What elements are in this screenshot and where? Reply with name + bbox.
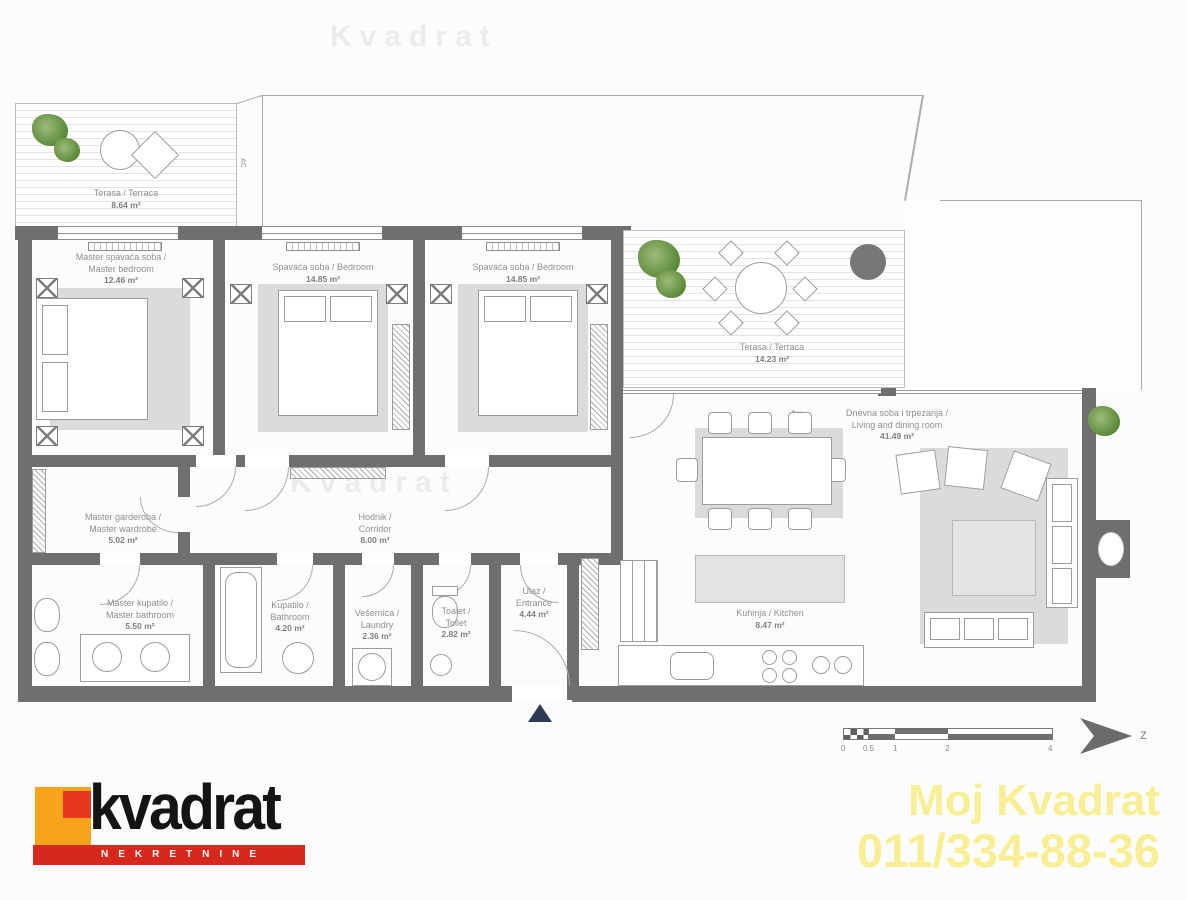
room-label-corridor: Hodnik / Corridor 8.00 m² (330, 512, 420, 546)
dining-chair (788, 508, 812, 530)
kvadrat-logo: kvadrat NEKRETNINE (33, 783, 305, 875)
room-area: 14.85 m² (448, 274, 598, 285)
entrance-door-arc (514, 630, 570, 686)
sink (92, 642, 122, 672)
armchair (895, 449, 940, 494)
wall (611, 226, 623, 565)
room-name-en: Bathroom (250, 612, 330, 624)
pillow (42, 305, 68, 355)
ac-label: AC (239, 158, 246, 168)
sofa-cushion (930, 618, 960, 640)
room-name: Terasa / Terraca (66, 188, 186, 200)
window (462, 226, 582, 240)
dining-chair (788, 412, 812, 434)
scale-tick: 4 (1048, 744, 1052, 753)
scale-tick: 1 (893, 744, 897, 753)
wall (411, 553, 423, 700)
door-opening (196, 455, 236, 467)
door-opening (362, 553, 394, 565)
parapet-line (262, 95, 263, 228)
wardrobe-closet (590, 324, 608, 430)
door-opening (512, 686, 572, 702)
washing-machine-drum (358, 653, 386, 681)
room-label-bedroom-b: Spavaća soba / Bedroom 14.85 m² (448, 262, 598, 285)
door-arc (445, 467, 489, 511)
dining-chair (708, 508, 732, 530)
room-label-kitchen: Kuhinja / Kitchen 8.47 m² (700, 608, 840, 631)
radiator (88, 242, 162, 251)
window (262, 226, 382, 240)
pillow (42, 362, 68, 412)
room-name: Terasa / Terraca (712, 342, 832, 354)
door-opening (277, 553, 313, 565)
hob-burner (812, 656, 830, 674)
dining-table (702, 437, 832, 505)
roof-area (905, 201, 1141, 388)
room-label-toilet: Toalet / Toilet 2.82 m² (425, 606, 487, 640)
dining-chair (748, 508, 772, 530)
plant-icon (656, 270, 686, 298)
pillow (484, 296, 526, 322)
room-area: 8.64 m² (66, 200, 186, 211)
hob-burner (834, 656, 852, 674)
agency-name: Moj Kvadrat (857, 776, 1160, 825)
fridge (620, 560, 658, 642)
sofa-cushion (1052, 526, 1072, 564)
pillow (530, 296, 572, 322)
kitchen-sink (670, 652, 714, 680)
room-label-entrance: Ulaz / Entrance 4.44 m² (504, 586, 564, 620)
room-area: 14.23 m² (712, 354, 832, 365)
sink (430, 654, 452, 676)
wall (213, 226, 225, 467)
sofa-cushion (1052, 568, 1072, 604)
wardrobe-closet (32, 469, 46, 553)
room-area: 12.46 m² (48, 275, 194, 286)
wall (178, 467, 190, 497)
hob-burner (762, 668, 777, 683)
door-arc (245, 467, 289, 511)
terrace-door-arc (630, 394, 674, 438)
door-arc (362, 565, 394, 597)
room-label-terrace-main: Terasa / Terraca 14.23 m² (712, 342, 832, 365)
room-name: Hodnik / (330, 512, 420, 524)
parapet-line (237, 95, 263, 104)
sofa-cushion (998, 618, 1028, 640)
hob-burner (782, 668, 797, 683)
door-arc (196, 467, 236, 507)
scale-tick: 2 (945, 744, 949, 753)
room-name: Kuhinja / Kitchen (700, 608, 840, 620)
sink (140, 642, 170, 672)
door-arc (277, 565, 313, 601)
room-area: 2.36 m² (344, 631, 410, 642)
radiator (486, 242, 560, 251)
room-name: Ulaz / (504, 586, 564, 598)
room-name: Toalet / (425, 606, 487, 618)
nightstand (36, 426, 58, 446)
parapet-line (262, 95, 922, 96)
nightstand (586, 284, 608, 304)
dining-chair (748, 412, 772, 434)
floor-plan-image: Kvadrat Kvadrat Terasa / Terraca 8.64 m²… (0, 0, 1186, 900)
logo-wordmark: kvadrat (89, 775, 279, 839)
wall (489, 553, 501, 700)
logo-tagline-banner: NEKRETNINE (33, 845, 305, 865)
hob-burner (762, 650, 777, 665)
room-label-laundry: Vešernica / Laundry 2.36 m² (344, 608, 410, 642)
compass-label: z (1140, 726, 1147, 742)
room-name-en: Laundry (344, 620, 410, 632)
room-name-en: Entrance (504, 598, 564, 610)
room-name: Master kupatilo / (82, 598, 198, 610)
armchair (944, 446, 988, 490)
door-opening (439, 553, 471, 565)
nightstand (230, 284, 252, 304)
sink (282, 642, 314, 674)
room-name-en: Master bedroom (48, 264, 194, 276)
toilet (34, 598, 60, 632)
parapet-line (904, 95, 924, 201)
dining-chair (676, 458, 698, 482)
room-name: Kupatilo / (250, 600, 330, 612)
hob-burner (782, 650, 797, 665)
plant-icon (54, 138, 80, 162)
window (58, 226, 178, 240)
bidet (34, 642, 60, 676)
scale-bar: 0 0.5 1 2 4 (843, 728, 1053, 758)
pillow (330, 296, 372, 322)
kitchen-island (695, 555, 845, 603)
room-name: Dnevna soba i trpezarija / (812, 408, 982, 420)
room-name: Spavaća soba / Bedroom (448, 262, 598, 274)
pillow (284, 296, 326, 322)
watermark-text: Kvadrat (330, 20, 498, 54)
door-opening (100, 553, 140, 565)
scale-bar-segment (869, 734, 895, 740)
room-name-en: Corridor (330, 524, 420, 536)
terrace-dark-circle (850, 244, 886, 280)
room-name: Vešernica / (344, 608, 410, 620)
wardrobe-closet (392, 324, 410, 430)
nightstand (182, 426, 204, 446)
room-area: 8.47 m² (700, 620, 840, 631)
door-opening (245, 455, 289, 467)
wall (18, 455, 623, 467)
entrance-closet (581, 558, 599, 650)
room-name-en: Toilet (425, 618, 487, 630)
toilet-tank (432, 586, 458, 596)
room-area: 5.02 m² (68, 535, 178, 546)
nightstand (430, 284, 452, 304)
radiator (286, 242, 360, 251)
agency-promo: Moj Kvadrat 011/334-88-36 (857, 776, 1160, 878)
room-area: 4.44 m² (504, 609, 564, 620)
compass-arrow-icon (1080, 716, 1136, 756)
dining-chair (708, 412, 732, 434)
scale-bar-checker (843, 728, 869, 740)
agency-phone: 011/334-88-36 (857, 825, 1160, 878)
wall (413, 226, 425, 467)
room-label-terrace-top: Terasa / Terraca 8.64 m² (66, 188, 186, 211)
room-label-bedroom-a: Spavaća soba / Bedroom 14.85 m² (248, 262, 398, 285)
room-name: Master spavaća soba / (48, 252, 194, 264)
niche-fixture (1098, 532, 1124, 566)
room-area: 2.82 m² (425, 629, 487, 640)
room-label-bathroom: Kupatilo / Bathroom 4.20 m² (250, 600, 330, 634)
room-label-master-bedroom: Master spavaća soba / Master bedroom 12.… (48, 252, 194, 286)
room-area: 8.00 m² (330, 535, 420, 546)
door-opening (445, 455, 489, 467)
window (623, 387, 881, 394)
terrace-table (735, 262, 787, 314)
scale-bar-segment (895, 728, 948, 734)
room-area: 5.50 m² (82, 621, 198, 632)
coffee-table (952, 520, 1036, 596)
entrance-marker-icon (528, 704, 552, 722)
room-area: 14.85 m² (248, 274, 398, 285)
corridor-closet (290, 467, 386, 479)
room-area: 4.20 m² (250, 623, 330, 634)
sofa-cushion (964, 618, 994, 640)
room-name: Spavaća soba / Bedroom (248, 262, 398, 274)
window (896, 387, 1082, 394)
scale-tick: 0.5 (863, 744, 874, 753)
scale-tick: 0 (841, 744, 845, 753)
room-label-master-bathroom: Master kupatilo / Master bathroom 5.50 m… (82, 598, 198, 632)
plant-icon (1088, 406, 1120, 436)
room-name-en: Master bathroom (82, 610, 198, 622)
sofa-cushion (1052, 484, 1072, 522)
wall (203, 553, 215, 700)
nightstand (386, 284, 408, 304)
parapet-line (1141, 200, 1142, 390)
scale-bar-segment (948, 734, 1052, 740)
logo-red-square (63, 791, 91, 818)
door-opening (520, 553, 558, 565)
